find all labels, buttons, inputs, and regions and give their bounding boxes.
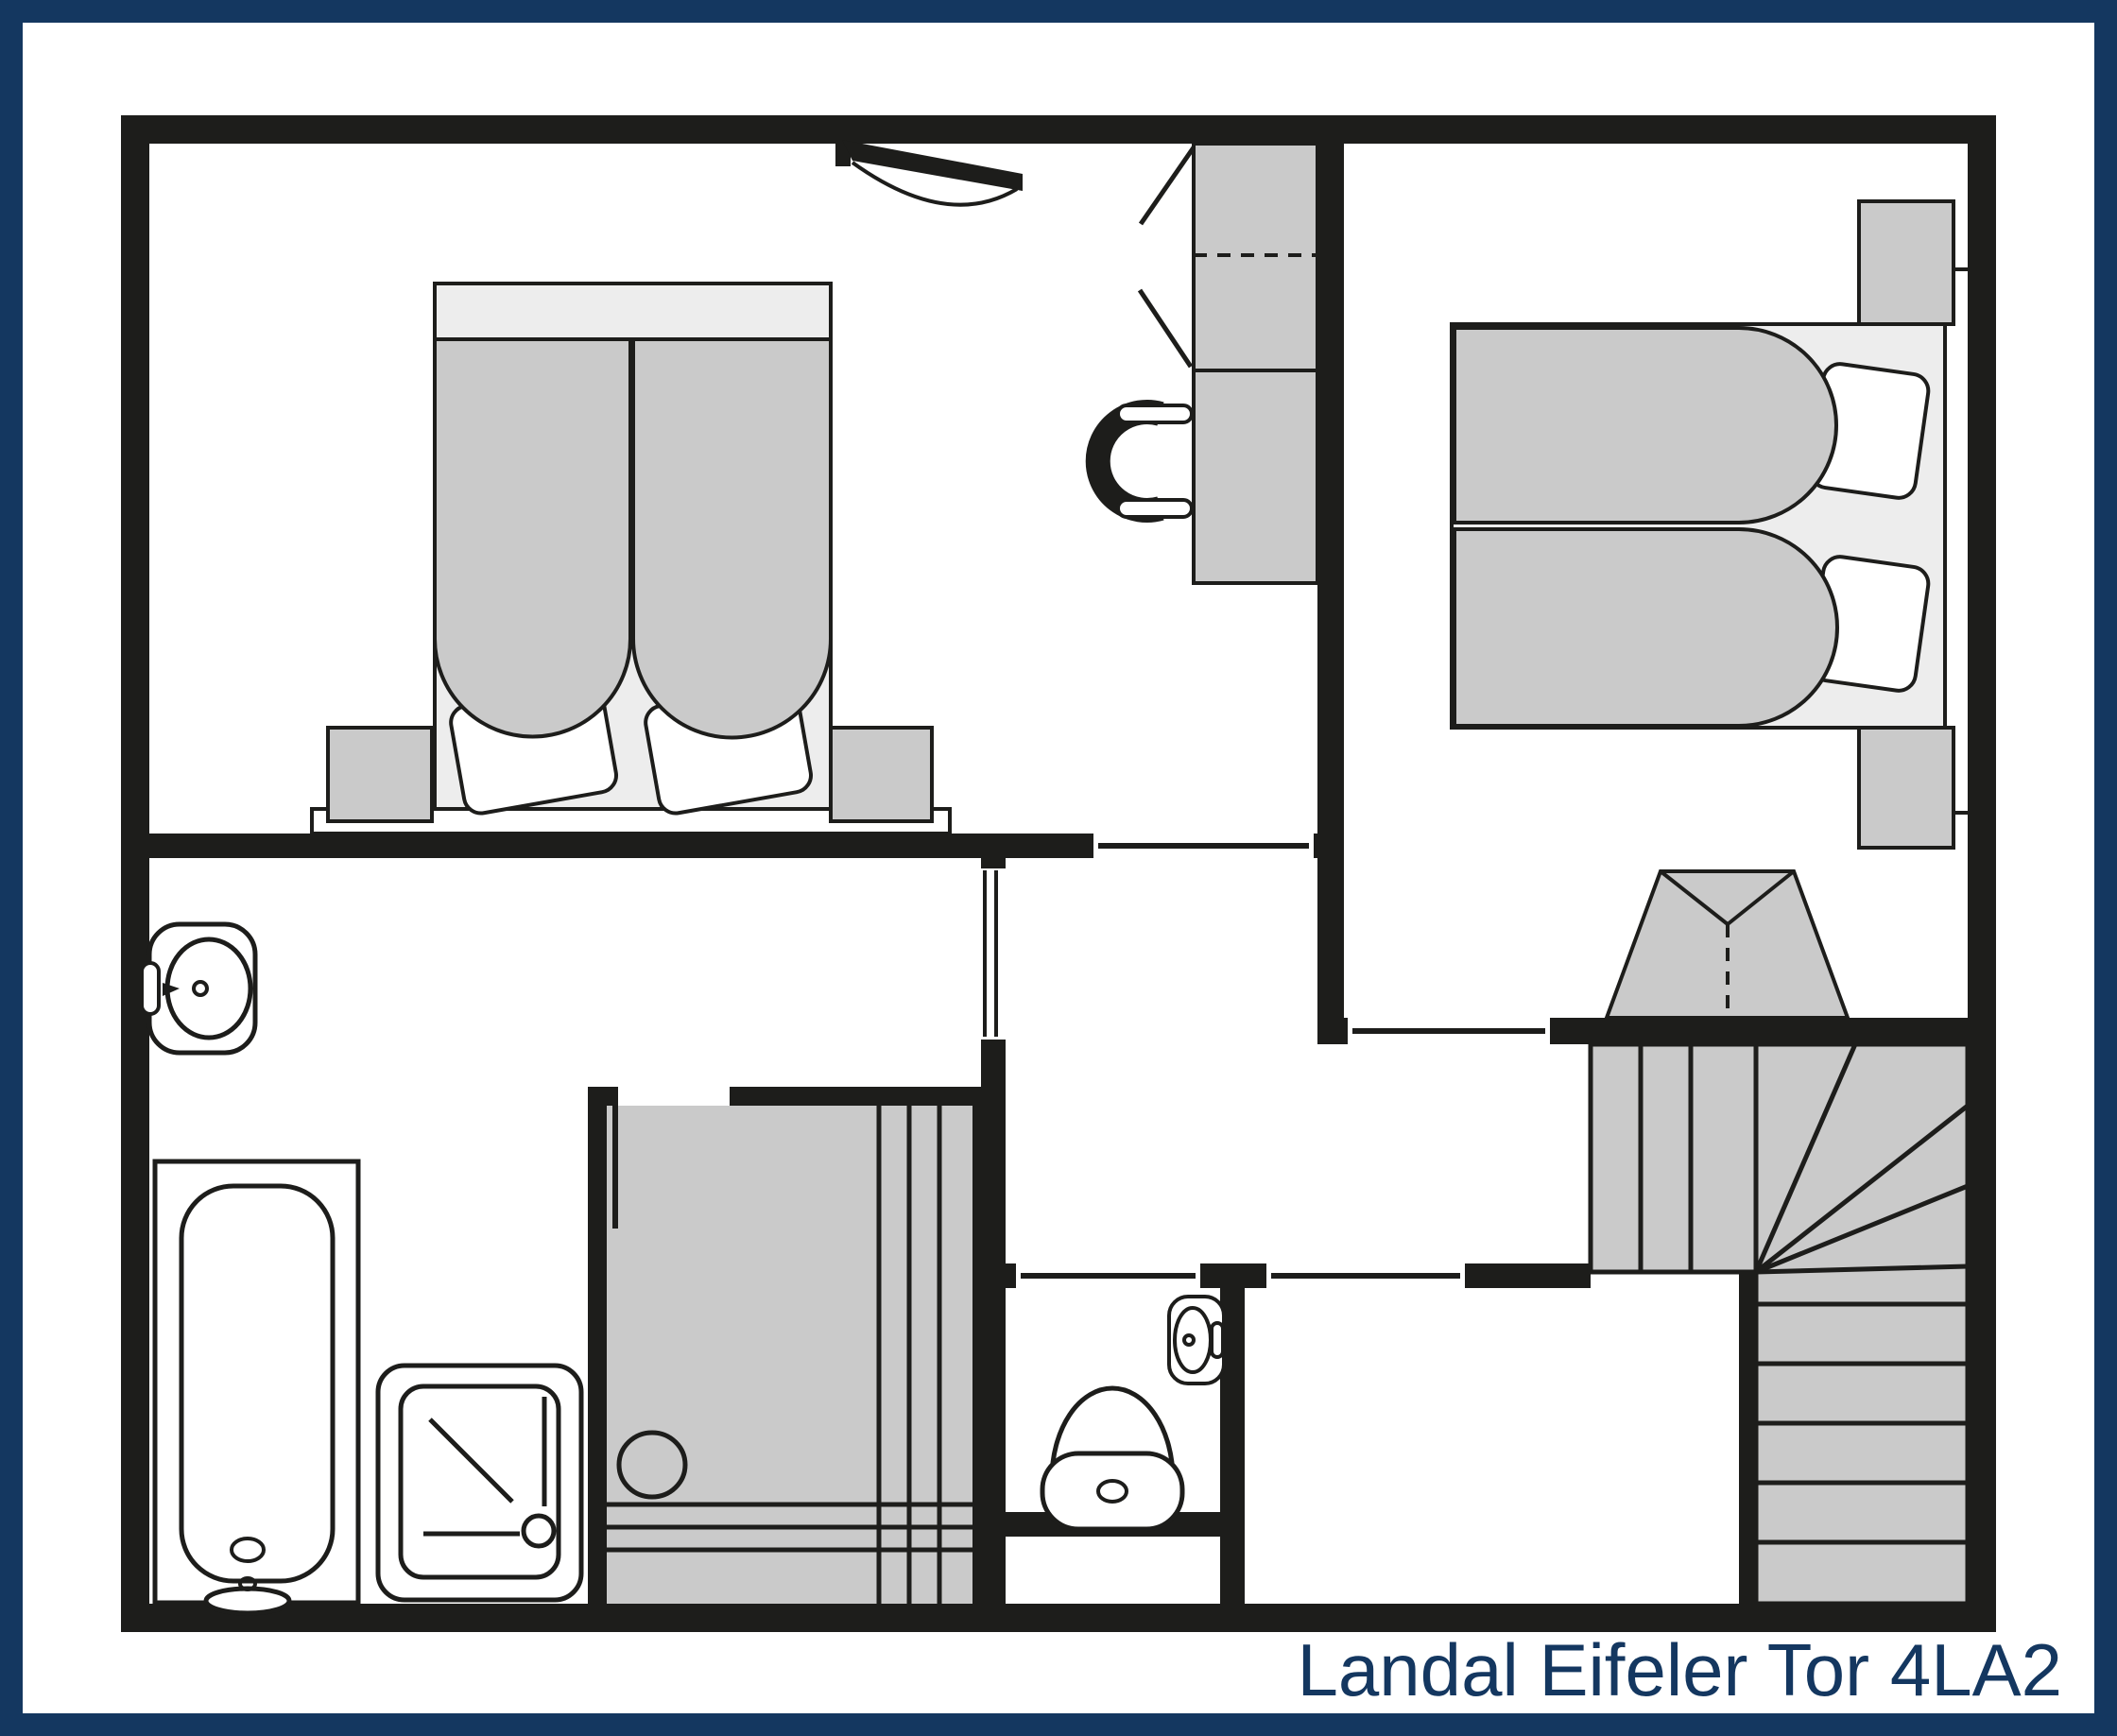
chair-armrest: [1118, 405, 1192, 422]
sauna-heater-icon: [619, 1433, 685, 1497]
sauna-icon: [588, 1087, 991, 1604]
wall-bedroom-divider: [1317, 144, 1344, 1044]
desk-icon: [1194, 370, 1317, 583]
nightstand-icon: [1859, 201, 1953, 324]
roof-window-icon: [835, 140, 1023, 205]
bathtub-faucet: [206, 1589, 289, 1613]
office-chair-icon: [1098, 405, 1192, 517]
sauna-wall-right: [972, 1087, 991, 1604]
sauna-door-opening: [612, 1087, 730, 1106]
wardrobe-icon: [1140, 144, 1317, 370]
toilet-door-leaf-icon: [1021, 1273, 1196, 1279]
duvet-icon: [435, 339, 630, 737]
corner-basin-tap: [1212, 1323, 1223, 1357]
door-openings: [981, 834, 1550, 1288]
winder-stairs-icon: [1591, 1044, 1968, 1604]
duvet-icon: [633, 339, 831, 738]
bedroom2: [1452, 201, 1970, 1018]
shower-tray-icon: [378, 1366, 581, 1600]
wardrobe-door-line: [1141, 147, 1194, 224]
bathtub-icon: [155, 1161, 358, 1613]
floor-plan: [0, 0, 2117, 1736]
outer-wall-left: [121, 115, 149, 1632]
shower-drain: [524, 1516, 554, 1546]
sauna-wall-left: [588, 1087, 607, 1604]
double-bed-icon: [1452, 201, 1970, 848]
outer-wall-right: [1968, 115, 1996, 1632]
washbasin-tap: [142, 963, 159, 1014]
nightstand-icon: [831, 728, 932, 821]
stairs-upper-flight: [1591, 1044, 1756, 1272]
plan-title: Landal Eifeler Tor 4LA2: [1298, 1627, 2062, 1713]
toilet-icon: [1042, 1388, 1182, 1529]
duvet-icon: [1454, 529, 1837, 726]
nightstand-icon: [1859, 728, 1953, 848]
outer-wall-top: [121, 115, 1996, 144]
stairs-lower-flight: [1756, 1304, 1968, 1604]
chair-back: [1098, 412, 1161, 510]
bedroom1-door-leaf-icon: [1098, 843, 1309, 849]
double-bed-icon: [312, 284, 950, 834]
corner-washbasin-icon: [1169, 1297, 1224, 1384]
bedroom1: [312, 140, 1317, 834]
nightstand-icon: [328, 728, 432, 821]
shower-inner: [401, 1386, 559, 1577]
bathroom-door-leaf-icon: [983, 870, 987, 1037]
duvet-icon: [1454, 328, 1836, 523]
storage-door-leaf-icon: [1271, 1273, 1460, 1279]
sauna-door-leaf-icon: [612, 1087, 618, 1229]
toilet-room: [1042, 1297, 1224, 1529]
roof-wedge-icon: [1607, 871, 1848, 1018]
toilet-base: [1042, 1453, 1182, 1529]
bathtub-tub: [181, 1186, 333, 1581]
bathroom-door-leaf-icon: [994, 870, 998, 1037]
washbasin-icon: [142, 924, 255, 1053]
bathroom: [142, 924, 991, 1613]
bedroom2-door-leaf-icon: [1352, 1028, 1545, 1034]
wall-staircase: [1739, 1272, 1756, 1604]
chair-armrest: [1118, 500, 1192, 517]
wardrobe-door-line: [1140, 290, 1191, 367]
roof-window-flap: [842, 140, 1023, 191]
